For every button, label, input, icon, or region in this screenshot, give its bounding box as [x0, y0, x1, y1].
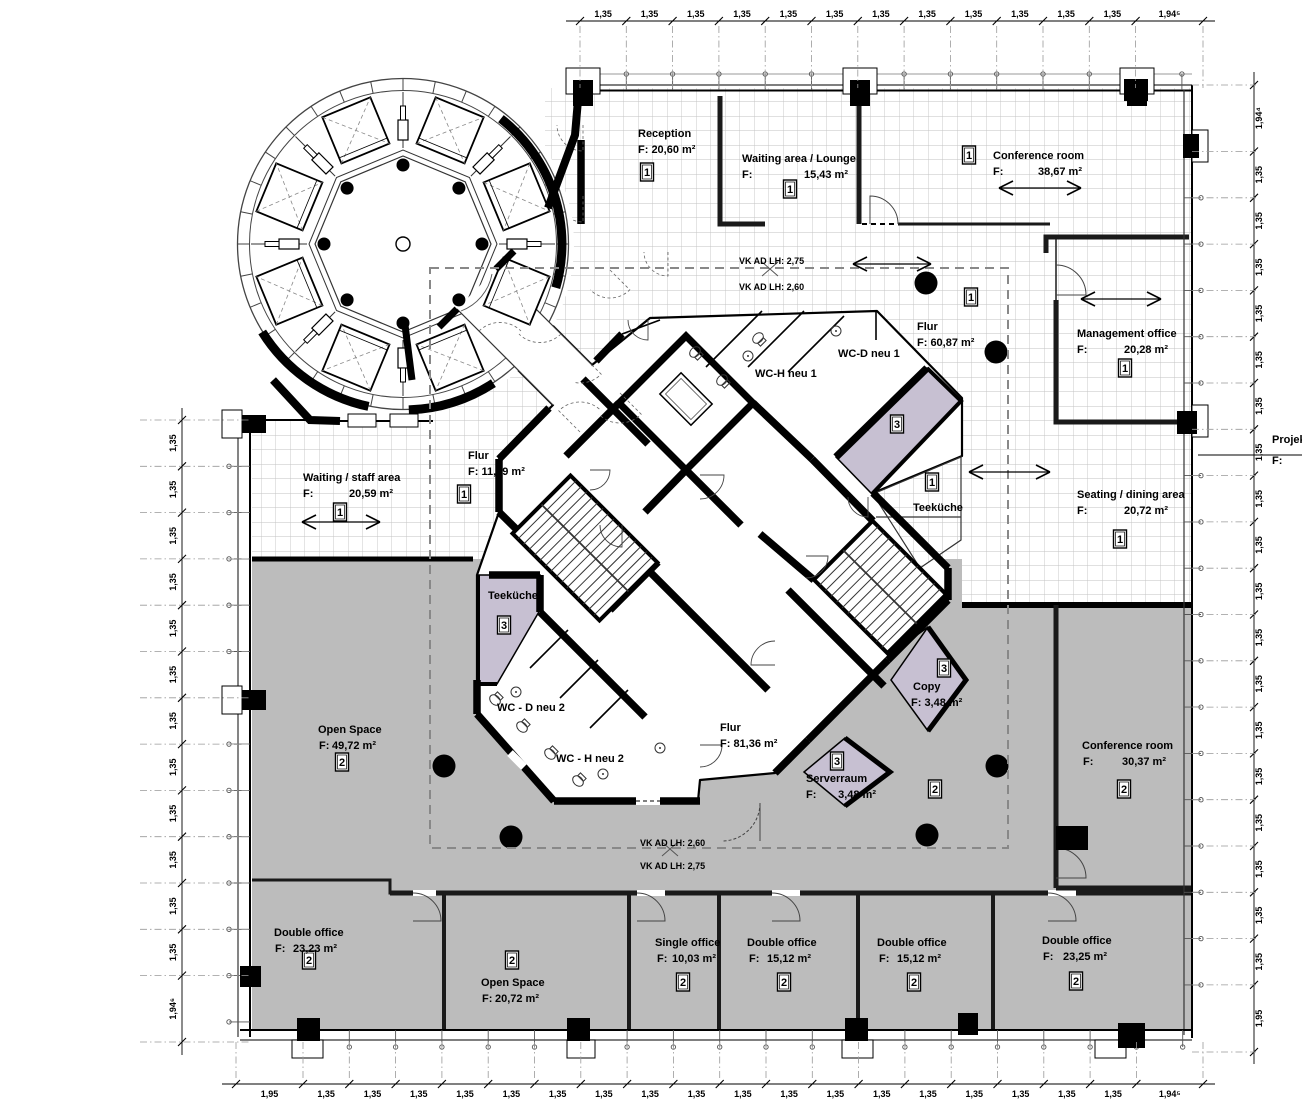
- svg-text:1,35: 1,35: [872, 9, 890, 19]
- svg-text:Teeküche: Teeküche: [488, 590, 538, 602]
- svg-text:VK AD LH: 2,60: VK AD LH: 2,60: [640, 838, 705, 848]
- svg-text:1,35: 1,35: [1254, 860, 1264, 878]
- svg-text:1,35: 1,35: [168, 851, 178, 869]
- svg-text:F:: F:: [1083, 756, 1093, 768]
- svg-text:F:: F:: [749, 953, 759, 965]
- svg-text:Management office: Management office: [1077, 328, 1177, 340]
- svg-text:1,35: 1,35: [641, 9, 659, 19]
- svg-text:1,35: 1,35: [456, 1089, 474, 1099]
- svg-text:1,35: 1,35: [168, 481, 178, 499]
- svg-text:1,35: 1,35: [549, 1089, 567, 1099]
- svg-text:F:: F:: [482, 993, 492, 1005]
- svg-text:F:: F:: [657, 953, 667, 965]
- svg-text:Double office: Double office: [877, 937, 947, 949]
- svg-text:1,35: 1,35: [688, 1089, 706, 1099]
- svg-text:1,35: 1,35: [1254, 629, 1264, 647]
- svg-text:1,35: 1,35: [410, 1089, 428, 1099]
- svg-text:Waiting / staff area: Waiting / staff area: [303, 472, 401, 484]
- svg-text:WC - D neu 2: WC - D neu 2: [497, 702, 565, 714]
- svg-text:2: 2: [339, 757, 345, 769]
- svg-text:1,94⁵: 1,94⁵: [1159, 9, 1181, 19]
- svg-text:3: 3: [834, 756, 840, 768]
- svg-text:1,35: 1,35: [827, 1089, 845, 1099]
- svg-text:WC-D neu 1: WC-D neu 1: [838, 348, 900, 360]
- svg-text:1: 1: [1122, 363, 1128, 375]
- svg-text:Double office: Double office: [1042, 935, 1112, 947]
- svg-text:Flur: Flur: [917, 321, 938, 333]
- svg-text:VK AD LH: 2,75: VK AD LH: 2,75: [739, 256, 804, 266]
- svg-text:1,35: 1,35: [595, 1089, 613, 1099]
- svg-text:1,35: 1,35: [734, 1089, 752, 1099]
- svg-text:2: 2: [911, 977, 917, 989]
- svg-text:F:: F:: [879, 953, 889, 965]
- svg-text:2: 2: [509, 955, 515, 967]
- svg-text:1,35: 1,35: [594, 9, 612, 19]
- svg-text:1: 1: [337, 507, 343, 519]
- svg-text:1,95: 1,95: [1254, 1010, 1264, 1028]
- svg-text:1,35: 1,35: [1254, 953, 1264, 971]
- svg-text:1: 1: [644, 167, 650, 179]
- svg-text:1,35: 1,35: [1254, 166, 1264, 184]
- svg-text:10,03 m²: 10,03 m²: [672, 953, 716, 965]
- svg-text:1,35: 1,35: [1104, 9, 1122, 19]
- svg-text:F:: F:: [806, 789, 816, 801]
- svg-text:3: 3: [894, 419, 900, 431]
- svg-text:23,25 m²: 23,25 m²: [1063, 951, 1107, 963]
- svg-text:F:: F:: [993, 166, 1003, 178]
- svg-text:1,35: 1,35: [1254, 397, 1264, 415]
- svg-text:38,67 m²: 38,67 m²: [1038, 166, 1082, 178]
- svg-text:1,35: 1,35: [1058, 1089, 1076, 1099]
- svg-text:1,35: 1,35: [965, 9, 983, 19]
- svg-text:Seating / dining area: Seating / dining area: [1077, 489, 1185, 501]
- svg-text:1,35: 1,35: [168, 573, 178, 591]
- svg-text:F:: F:: [303, 488, 313, 500]
- svg-text:VK AD LH: 2,75: VK AD LH: 2,75: [640, 861, 705, 871]
- svg-text:1,35: 1,35: [733, 9, 751, 19]
- svg-text:30,37 m²: 30,37 m²: [1122, 756, 1166, 768]
- svg-text:1,35: 1,35: [168, 666, 178, 684]
- svg-text:1,35: 1,35: [1254, 536, 1264, 554]
- svg-text:F:: F:: [1043, 951, 1053, 963]
- svg-text:2: 2: [306, 955, 312, 967]
- svg-text:1,35: 1,35: [1254, 721, 1264, 739]
- svg-text:23,23 m²: 23,23 m²: [293, 943, 337, 955]
- svg-text:Copy: Copy: [913, 681, 941, 693]
- svg-text:15,12 m²: 15,12 m²: [767, 953, 811, 965]
- svg-text:1,35: 1,35: [641, 1089, 659, 1099]
- svg-text:1,35: 1,35: [966, 1089, 984, 1099]
- svg-text:3,48 m²: 3,48 m²: [838, 789, 876, 801]
- svg-text:2: 2: [1073, 976, 1079, 988]
- svg-text:F:: F:: [1077, 505, 1087, 517]
- svg-text:1,35: 1,35: [168, 527, 178, 545]
- svg-text:1,35: 1,35: [317, 1089, 335, 1099]
- svg-text:1,35: 1,35: [873, 1089, 891, 1099]
- svg-text:1,35: 1,35: [168, 620, 178, 638]
- svg-text:Flur: Flur: [468, 450, 489, 462]
- svg-text:Waiting area / Lounge: Waiting area / Lounge: [742, 153, 856, 165]
- svg-text:1: 1: [461, 489, 467, 501]
- svg-text:1,35: 1,35: [503, 1089, 521, 1099]
- svg-text:1,94⁴: 1,94⁴: [1254, 107, 1264, 129]
- svg-text:F: 11,39 m²: F: 11,39 m²: [468, 466, 525, 478]
- svg-text:VK AD LH: 2,60: VK AD LH: 2,60: [739, 282, 804, 292]
- svg-text:1,35: 1,35: [1254, 212, 1264, 230]
- svg-text:1,35: 1,35: [780, 1089, 798, 1099]
- svg-text:49,72 m²: 49,72 m²: [332, 740, 376, 752]
- svg-text:2: 2: [932, 784, 938, 796]
- svg-text:Conference room: Conference room: [1082, 740, 1173, 752]
- svg-text:15,43 m²: 15,43 m²: [804, 169, 848, 181]
- svg-text:1,35: 1,35: [1254, 490, 1264, 508]
- svg-text:1,35: 1,35: [364, 1089, 382, 1099]
- svg-text:Reception: Reception: [638, 128, 691, 140]
- svg-text:Single office: Single office: [655, 937, 720, 949]
- svg-text:1,35: 1,35: [1254, 907, 1264, 925]
- svg-text:1,35: 1,35: [919, 1089, 937, 1099]
- svg-text:Projekt: Projekt: [1272, 434, 1302, 446]
- svg-text:1,94⁵: 1,94⁵: [1159, 1089, 1181, 1099]
- svg-text:1,35: 1,35: [1012, 1089, 1030, 1099]
- svg-text:1,35: 1,35: [168, 897, 178, 915]
- svg-text:F: 20,60 m²: F: 20,60 m²: [638, 144, 696, 156]
- svg-text:Conference room: Conference room: [993, 150, 1084, 162]
- svg-text:Open Space: Open Space: [481, 977, 545, 989]
- svg-text:3: 3: [501, 620, 507, 632]
- svg-text:1,35: 1,35: [1057, 9, 1075, 19]
- svg-text:1,35: 1,35: [168, 805, 178, 823]
- svg-text:1,35: 1,35: [168, 758, 178, 776]
- svg-text:1,35: 1,35: [918, 9, 936, 19]
- svg-text:1,35: 1,35: [1254, 444, 1264, 462]
- svg-text:1: 1: [966, 150, 972, 162]
- svg-text:3: 3: [941, 663, 947, 675]
- svg-text:F:: F:: [319, 740, 329, 752]
- svg-text:1,35: 1,35: [168, 712, 178, 730]
- svg-text:1,35: 1,35: [1011, 9, 1029, 19]
- svg-text:1: 1: [968, 292, 974, 304]
- svg-text:2: 2: [680, 977, 686, 989]
- svg-text:F:: F:: [1077, 344, 1087, 356]
- svg-text:F: 3,48 m²: F: 3,48 m²: [911, 697, 963, 709]
- svg-text:2: 2: [1121, 784, 1127, 796]
- svg-text:WC-H neu 1: WC-H neu 1: [755, 368, 817, 380]
- svg-text:1,35: 1,35: [1254, 258, 1264, 276]
- svg-text:1,35: 1,35: [168, 944, 178, 962]
- svg-text:WC - H neu 2: WC - H neu 2: [556, 753, 624, 765]
- svg-text:20,28 m²: 20,28 m²: [1124, 344, 1168, 356]
- svg-text:1,35: 1,35: [1254, 814, 1264, 832]
- svg-text:20,59 m²: 20,59 m²: [349, 488, 393, 500]
- svg-text:20,72 m²: 20,72 m²: [495, 993, 539, 1005]
- svg-text:F: 81,36 m²: F: 81,36 m²: [720, 738, 778, 750]
- svg-text:1,35: 1,35: [826, 9, 844, 19]
- svg-text:Double office: Double office: [747, 937, 817, 949]
- svg-text:F:: F:: [1272, 455, 1282, 467]
- svg-text:1: 1: [787, 184, 793, 196]
- svg-text:Double office: Double office: [274, 927, 344, 939]
- svg-text:1,35: 1,35: [1254, 583, 1264, 601]
- svg-text:Teeküche: Teeküche: [913, 502, 963, 514]
- svg-text:1,35: 1,35: [1104, 1089, 1122, 1099]
- svg-text:1,35: 1,35: [1254, 351, 1264, 369]
- svg-text:F:: F:: [275, 943, 285, 955]
- svg-text:1,35: 1,35: [687, 9, 705, 19]
- svg-text:F: 60,87 m²: F: 60,87 m²: [917, 337, 975, 349]
- svg-text:Serverraum: Serverraum: [806, 773, 867, 785]
- svg-text:20,72 m²: 20,72 m²: [1124, 505, 1168, 517]
- svg-text:Flur: Flur: [720, 722, 741, 734]
- svg-text:1,35: 1,35: [168, 434, 178, 452]
- svg-text:1,94⁶: 1,94⁶: [168, 998, 178, 1020]
- svg-text:15,12 m²: 15,12 m²: [897, 953, 941, 965]
- svg-text:1,35: 1,35: [1254, 305, 1264, 323]
- svg-text:1: 1: [1117, 534, 1123, 546]
- svg-text:1,35: 1,35: [1254, 675, 1264, 693]
- svg-text:1,95: 1,95: [261, 1089, 279, 1099]
- svg-text:2: 2: [781, 977, 787, 989]
- svg-text:F:: F:: [742, 169, 752, 181]
- svg-text:1: 1: [929, 477, 935, 489]
- svg-text:1,35: 1,35: [780, 9, 798, 19]
- svg-text:1,35: 1,35: [1254, 768, 1264, 786]
- svg-text:Open Space: Open Space: [318, 724, 382, 736]
